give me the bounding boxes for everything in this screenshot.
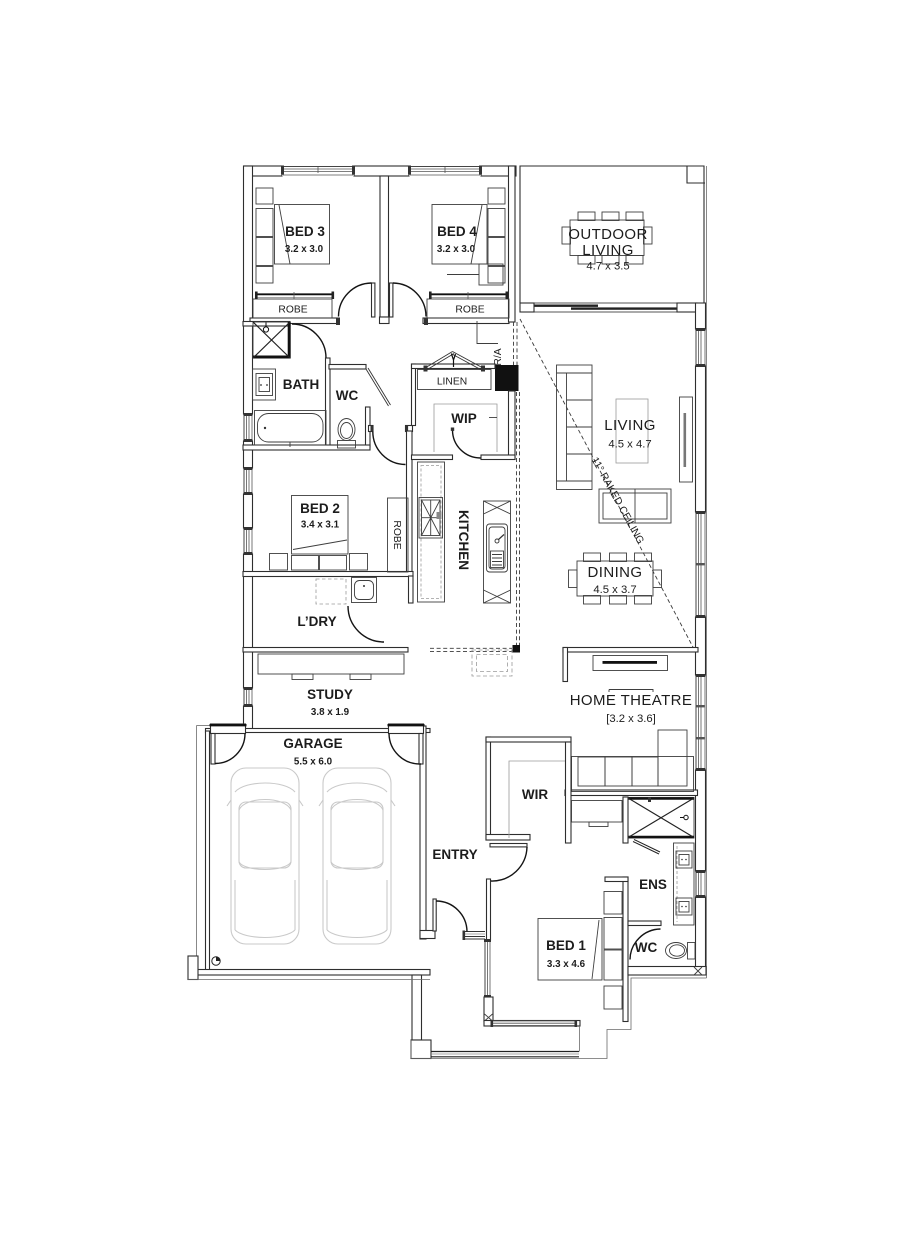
svg-text:BED 4: BED 4	[437, 224, 477, 239]
svg-text:3.2 x 3.0: 3.2 x 3.0	[437, 244, 476, 255]
svg-text:STUDY: STUDY	[307, 687, 353, 702]
svg-text:LINEN: LINEN	[437, 377, 467, 388]
svg-text:BED 1: BED 1	[546, 938, 586, 953]
svg-text:ROBE: ROBE	[391, 520, 402, 549]
svg-text:5.5 x 6.0: 5.5 x 6.0	[294, 757, 333, 768]
svg-text:ROBE: ROBE	[455, 305, 484, 316]
svg-text:LIVING: LIVING	[604, 417, 656, 434]
svg-text:DINING: DINING	[588, 564, 643, 581]
svg-text:11° RAKED CEILING: 11° RAKED CEILING	[589, 456, 646, 546]
svg-text:ENS: ENS	[639, 877, 667, 892]
svg-text:ROBE: ROBE	[278, 305, 307, 316]
svg-text:3.4 x 3.1: 3.4 x 3.1	[301, 520, 340, 531]
svg-text:LIVING: LIVING	[582, 242, 634, 259]
svg-text:OUTDOOR: OUTDOOR	[568, 226, 647, 243]
svg-text:3.3 x 4.6: 3.3 x 4.6	[547, 959, 586, 970]
svg-text:GARAGE: GARAGE	[283, 736, 342, 751]
svg-text:ENTRY: ENTRY	[432, 847, 477, 862]
svg-text:WIR: WIR	[522, 787, 548, 802]
svg-text:4.5 x 3.7: 4.5 x 3.7	[593, 584, 636, 596]
svg-text:BED 3: BED 3	[285, 224, 325, 239]
svg-text:WC: WC	[635, 940, 658, 955]
svg-text:WC: WC	[336, 388, 359, 403]
svg-text:WIP: WIP	[451, 411, 477, 426]
svg-text:4.7 x 3.5: 4.7 x 3.5	[586, 261, 629, 273]
svg-text:BED 2: BED 2	[300, 501, 340, 516]
svg-text:KITCHEN: KITCHEN	[456, 510, 471, 570]
svg-text:3.2 x 3.0: 3.2 x 3.0	[285, 244, 324, 255]
svg-text:BATH: BATH	[283, 377, 320, 392]
svg-text:HOME THEATRE: HOME THEATRE	[570, 692, 693, 709]
svg-text:R/A: R/A	[493, 348, 504, 365]
svg-text:4.5 x 4.7: 4.5 x 4.7	[608, 439, 651, 451]
svg-text:L’DRY: L’DRY	[297, 614, 336, 629]
svg-text:[3.2 x 3.6]: [3.2 x 3.6]	[606, 713, 656, 725]
svg-text:3.8 x 1.9: 3.8 x 1.9	[311, 707, 350, 718]
